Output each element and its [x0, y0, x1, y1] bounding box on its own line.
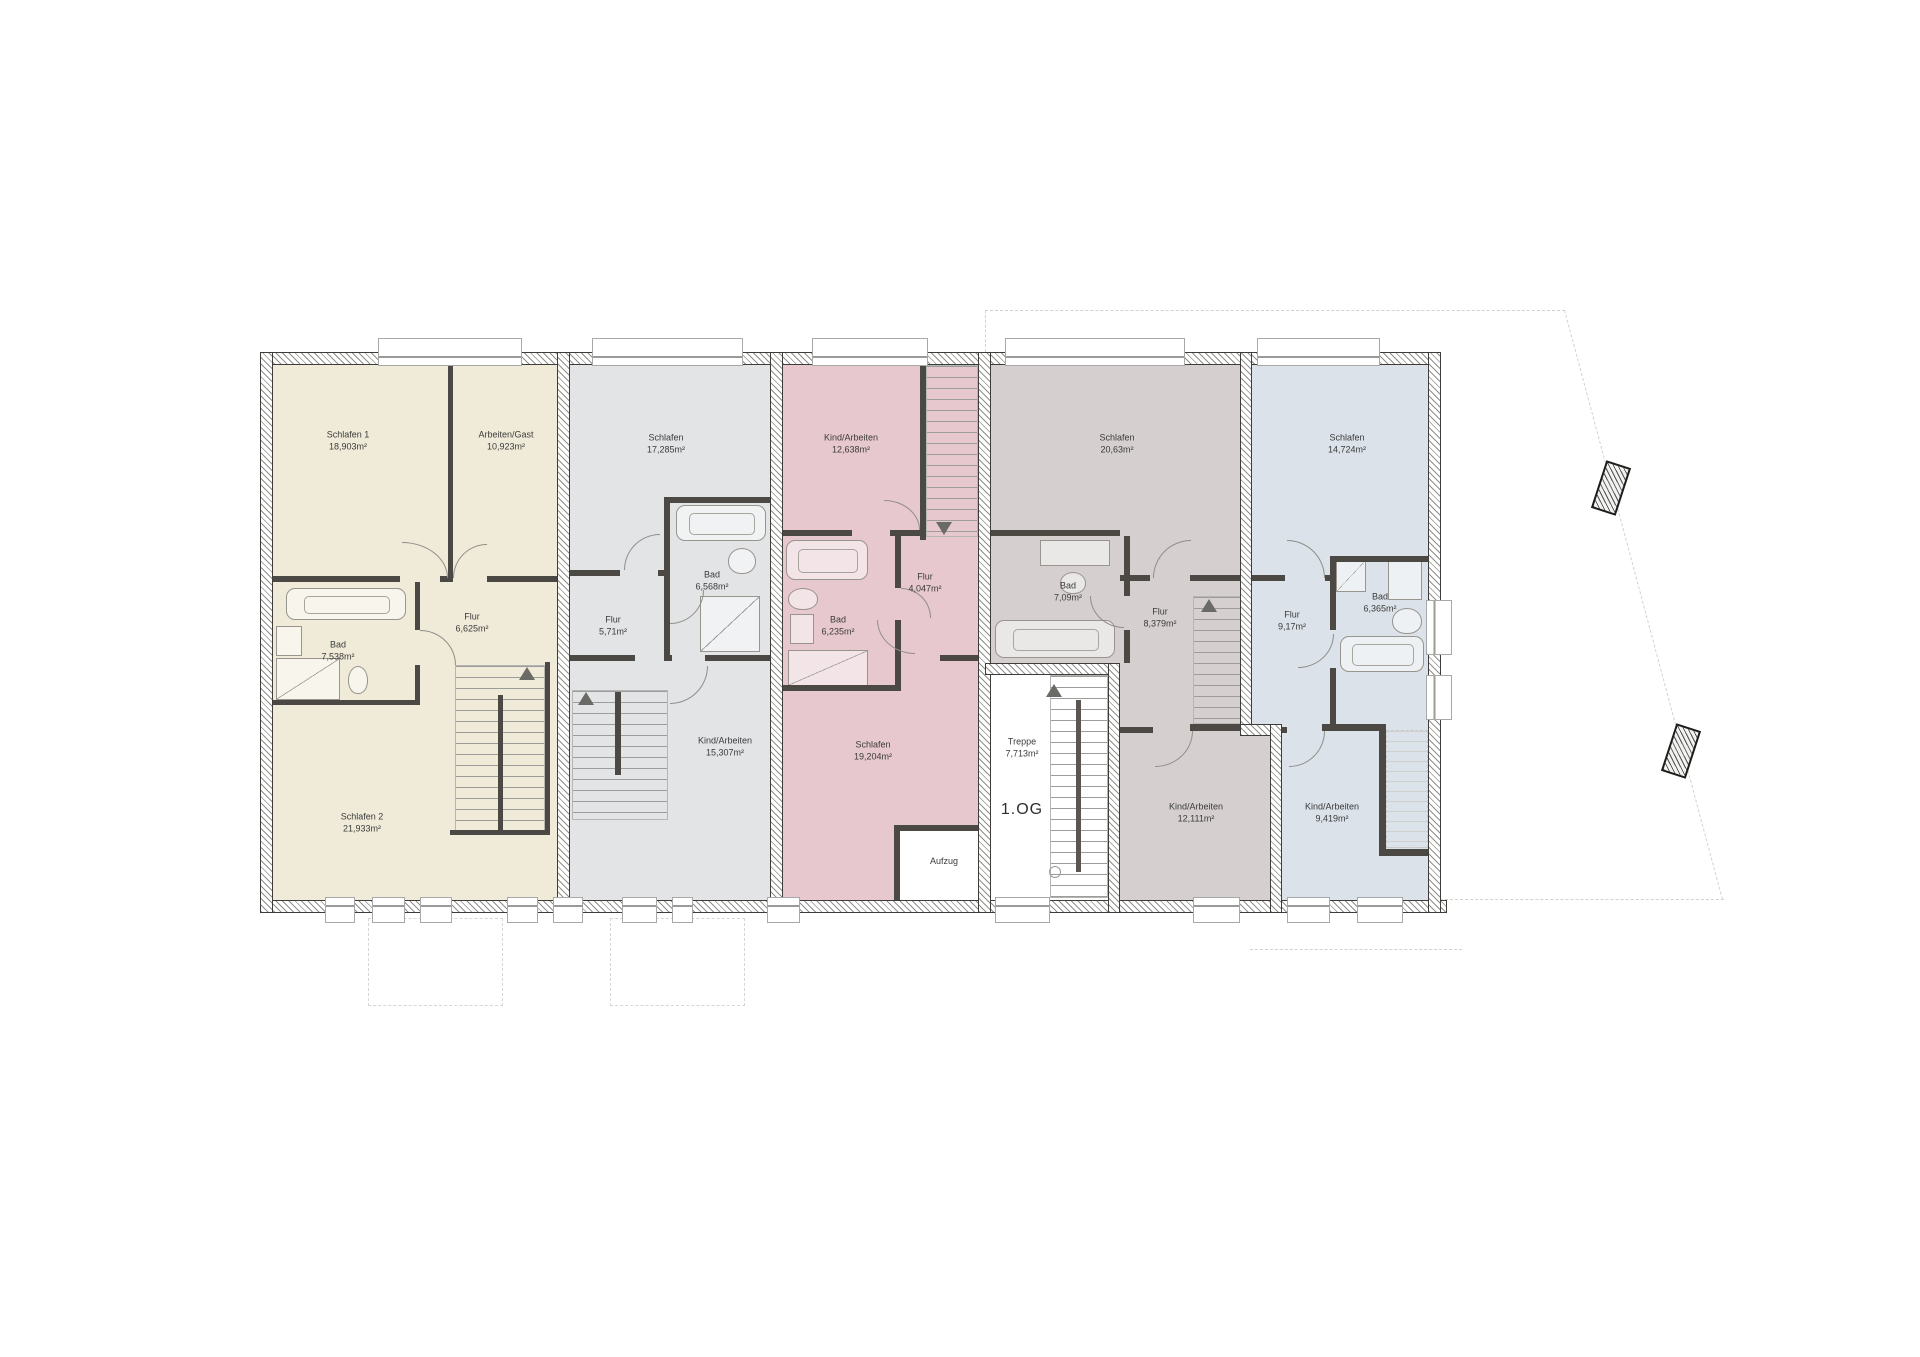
- partition-wall: [1330, 562, 1336, 630]
- washbasin: [276, 626, 302, 656]
- chimney: [1591, 460, 1631, 516]
- partition-wall: [1330, 668, 1336, 730]
- room-label-bad-u2: Bad6,568m²: [695, 569, 728, 592]
- partition-wall: [940, 655, 978, 661]
- staircase-unit-5-ghost: [1386, 730, 1428, 848]
- window: [1426, 600, 1452, 655]
- toilet: [788, 588, 818, 610]
- partition-wall: [664, 655, 672, 661]
- partition-wall: [415, 582, 420, 630]
- window: [325, 897, 355, 923]
- window: [672, 897, 693, 923]
- bathtub: [1340, 636, 1424, 672]
- washbasin: [1040, 540, 1110, 566]
- room-label-bad-u3: Bad6,235m²: [821, 614, 854, 637]
- room-label-kind-arbeiten-u3: Kind/Arbeiten12,638m²: [824, 432, 878, 455]
- window: [507, 897, 538, 923]
- partition-wall: [498, 695, 503, 833]
- window: [622, 897, 657, 923]
- partition-wall: [664, 497, 670, 660]
- room-label-flur-u2: Flur5,71m²: [599, 614, 627, 637]
- room-label-bad-u4: Bad7,09m²: [1054, 580, 1082, 603]
- partition-wall: [615, 692, 621, 775]
- stair-direction-arrow-icon: [578, 692, 594, 705]
- partition-wall: [1120, 575, 1150, 581]
- partition-wall: [920, 362, 926, 540]
- shower: [788, 650, 868, 686]
- window: [1357, 897, 1403, 923]
- partition-wall: [450, 830, 550, 835]
- partition-wall: [1322, 724, 1384, 731]
- room-label-treppe: Treppe7,713m²: [1005, 736, 1038, 759]
- room-label-schlafen-u3: Schlafen19,204m²: [854, 739, 892, 762]
- staircase-unit-4: [1193, 596, 1243, 724]
- room-label-bad-u1: Bad7,538m²: [321, 639, 354, 662]
- partition-wall: [782, 530, 852, 536]
- toilet: [728, 548, 756, 574]
- window: [995, 897, 1050, 923]
- partition-wall: [570, 570, 620, 576]
- partition-wall: [705, 655, 772, 661]
- window: [1426, 675, 1452, 720]
- room-label-schlafen-u4: Schlafen20,63m²: [1099, 432, 1134, 455]
- room-label-flur-u1: Flur6,625m²: [455, 611, 488, 634]
- exterior-wall-left: [260, 352, 273, 913]
- partition-wall: [487, 576, 557, 582]
- partition-wall: [1124, 536, 1130, 596]
- room-label-schlafen-2: Schlafen 221,933m²: [341, 811, 384, 834]
- room-label-schlafen-u2: Schlafen17,285m²: [647, 432, 685, 455]
- window: [1193, 897, 1240, 923]
- bathtub: [676, 505, 766, 541]
- window: [1005, 338, 1185, 366]
- window: [372, 897, 405, 923]
- bathtub: [995, 620, 1115, 658]
- floor-level-label: 1.OG: [1001, 801, 1043, 819]
- window: [378, 338, 522, 366]
- window: [592, 338, 743, 366]
- partition-wall: [448, 365, 453, 578]
- room-label-flur-u3: Flur4,047m²: [908, 571, 941, 594]
- room-label-arbeiten-gast: Arbeiten/Gast10,923m²: [478, 429, 533, 452]
- stair-direction-arrow-icon: [1046, 684, 1062, 697]
- bathtub: [286, 588, 406, 620]
- roof-outline-diagonal: [1563, 310, 1723, 900]
- roof-outline-bottom: [1440, 899, 1724, 901]
- shower: [700, 596, 760, 652]
- partition-wall: [272, 576, 400, 582]
- floor-plan-1og: Schlafen 118,903m² Arbeiten/Gast10,923m²…: [0, 0, 1920, 1357]
- partition-wall: [415, 665, 420, 705]
- bathtub: [786, 540, 868, 580]
- room-label-kind-arbeiten-u5: Kind/Arbeiten9,419m²: [1305, 801, 1359, 824]
- chimney: [1661, 723, 1701, 779]
- room-label-schlafen-1: Schlafen 118,903m²: [327, 429, 370, 452]
- party-wall: [1270, 724, 1282, 913]
- window: [1287, 897, 1330, 923]
- party-wall: [557, 352, 570, 913]
- room-label-bad-u5: Bad6,365m²: [1363, 591, 1396, 614]
- elevator-wall: [894, 825, 986, 831]
- partition-wall: [664, 497, 772, 503]
- partition-wall: [1190, 575, 1240, 581]
- terrace-outline-right: [1250, 949, 1462, 951]
- partition-wall: [1120, 727, 1153, 733]
- partition-wall: [1124, 630, 1130, 663]
- partition-wall: [1190, 724, 1245, 731]
- party-wall: [1240, 352, 1252, 736]
- partition-wall: [272, 700, 420, 705]
- window: [767, 897, 800, 923]
- partition-wall: [1330, 556, 1428, 562]
- window: [553, 897, 583, 923]
- stair-direction-arrow-icon: [1201, 599, 1217, 612]
- partition-wall: [1252, 575, 1285, 581]
- partition-wall: [545, 662, 550, 835]
- core-wall-top: [985, 663, 1120, 675]
- window: [420, 897, 452, 923]
- stair-start-marker: [1049, 866, 1061, 878]
- stair-handrail: [1076, 700, 1081, 872]
- party-wall: [770, 352, 783, 913]
- partition-wall: [990, 530, 1120, 536]
- room-label-kind-arbeiten-u2: Kind/Arbeiten15,307m²: [698, 735, 752, 758]
- partition-wall: [570, 655, 635, 661]
- terrace-outline-center: [610, 918, 745, 1006]
- room-label-aufzug: Aufzug: [930, 856, 958, 868]
- room-label-flur-u4: Flur8,379m²: [1143, 606, 1176, 629]
- washbasin: [790, 614, 814, 644]
- core-wall-right: [1108, 663, 1120, 913]
- partition-wall: [782, 685, 901, 691]
- roof-outline-left: [985, 310, 987, 352]
- partition-wall: [1379, 724, 1386, 856]
- staircase-unit-3: [926, 365, 978, 537]
- window: [812, 338, 928, 366]
- stair-direction-arrow-icon: [936, 522, 952, 535]
- stair-direction-arrow-icon: [519, 667, 535, 680]
- roof-outline-top: [985, 310, 1565, 312]
- party-wall: [978, 352, 991, 913]
- room-label-schlafen-u5: Schlafen14,724m²: [1328, 432, 1366, 455]
- shower: [276, 658, 340, 700]
- room-label-kind-arbeiten-u4: Kind/Arbeiten12,111m²: [1169, 801, 1223, 824]
- toilet: [348, 666, 368, 694]
- unit-4-area-extension: [1240, 736, 1270, 900]
- partition-wall: [895, 536, 901, 588]
- room-label-flur-u5: Flur9,17m²: [1278, 609, 1306, 632]
- elevator-wall: [894, 825, 900, 900]
- terrace-outline-left: [368, 918, 503, 1006]
- shower: [1336, 560, 1366, 592]
- window: [1257, 338, 1380, 366]
- partition-wall: [1379, 849, 1430, 856]
